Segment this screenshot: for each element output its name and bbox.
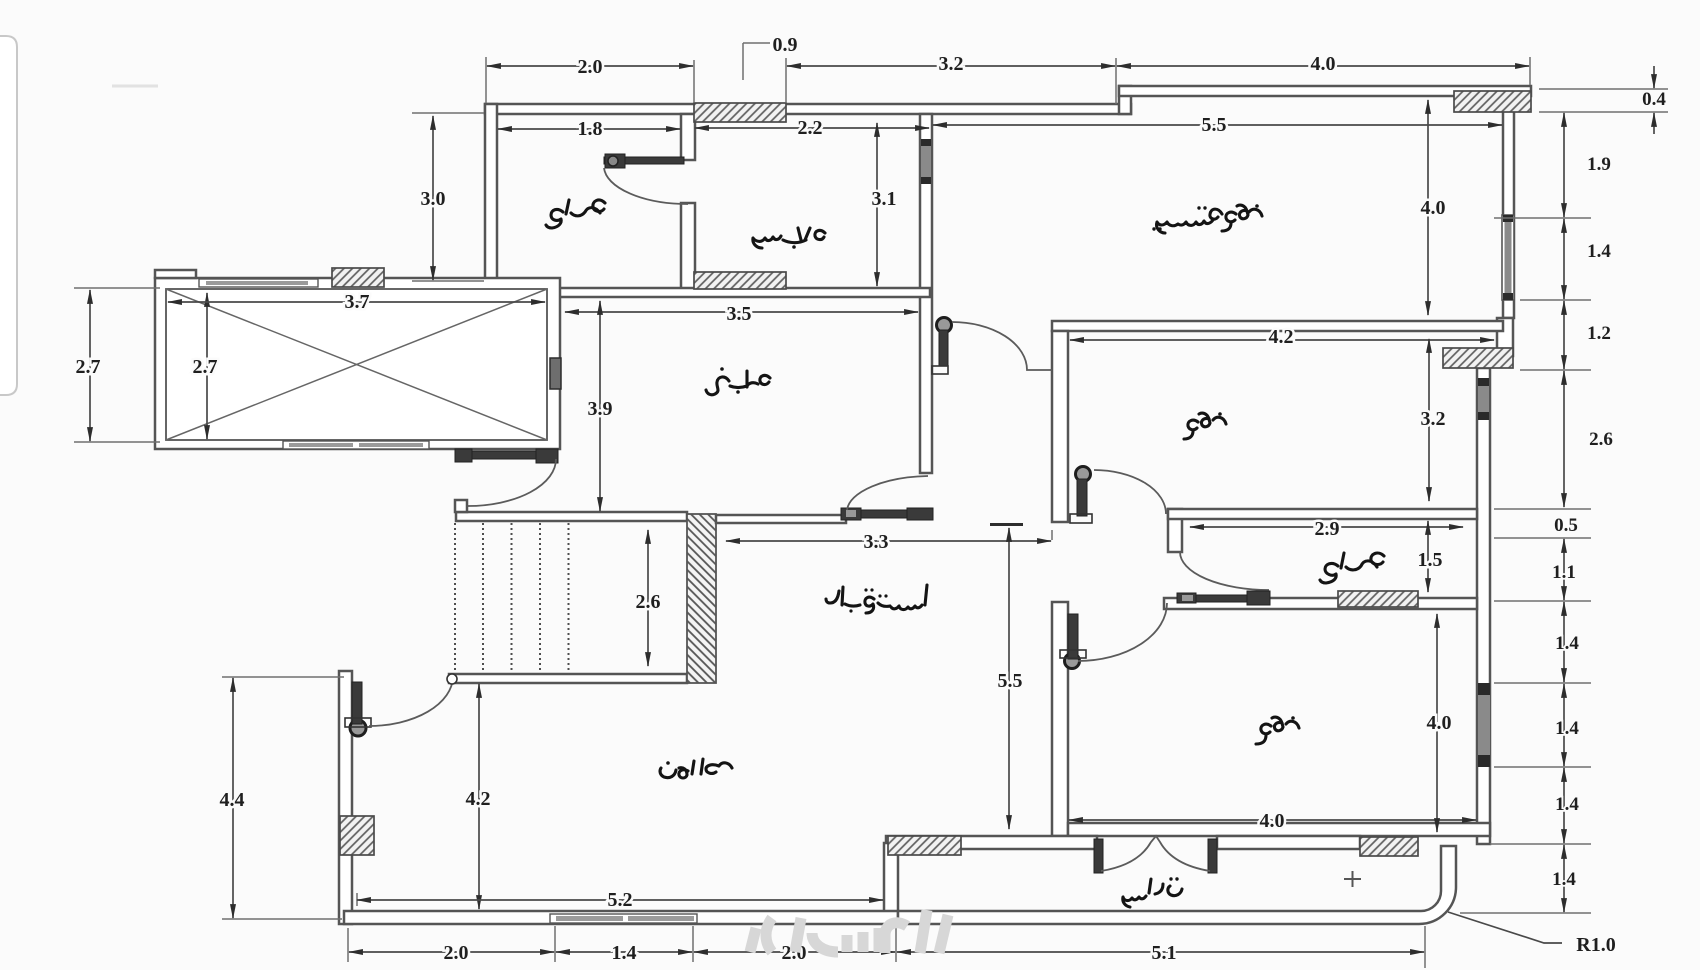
svg-text:5.2: 5.2 xyxy=(608,889,633,911)
svg-text:0.9: 0.9 xyxy=(773,34,798,56)
svg-text:4.2: 4.2 xyxy=(1269,326,1294,348)
svg-text:4.0: 4.0 xyxy=(1260,810,1285,832)
svg-text:2.7: 2.7 xyxy=(193,356,218,378)
svg-text:0.5: 0.5 xyxy=(1554,515,1578,536)
svg-text:4.0: 4.0 xyxy=(1311,53,1336,75)
svg-text:3.2: 3.2 xyxy=(1421,408,1446,430)
svg-text:1.9: 1.9 xyxy=(1587,154,1611,175)
svg-text:3.5: 3.5 xyxy=(727,303,752,325)
svg-text:3.9: 3.9 xyxy=(588,398,613,420)
svg-text:3.1: 3.1 xyxy=(872,188,897,210)
svg-text:5.5: 5.5 xyxy=(998,670,1023,692)
svg-text:1.4: 1.4 xyxy=(1587,241,1611,262)
svg-text:1.4: 1.4 xyxy=(1552,869,1576,890)
svg-text:1.2: 1.2 xyxy=(1587,323,1611,344)
svg-text:2.9: 2.9 xyxy=(1315,518,1340,540)
svg-text:4.0: 4.0 xyxy=(1421,197,1446,219)
svg-text:1.8: 1.8 xyxy=(578,118,603,140)
svg-text:2.0: 2.0 xyxy=(444,942,469,964)
svg-text:3.2: 3.2 xyxy=(939,53,964,75)
svg-text:1.4: 1.4 xyxy=(1555,633,1579,654)
svg-text:1.4: 1.4 xyxy=(1555,718,1579,739)
svg-text:5.5: 5.5 xyxy=(1202,114,1227,136)
svg-text:4.4: 4.4 xyxy=(220,789,245,811)
svg-text:3.7: 3.7 xyxy=(345,291,370,313)
svg-text:2.0: 2.0 xyxy=(578,56,603,78)
svg-text:1.1: 1.1 xyxy=(1552,562,1576,583)
svg-text:1.5: 1.5 xyxy=(1418,549,1443,571)
svg-text:3.0: 3.0 xyxy=(421,188,446,210)
svg-text:R1.0: R1.0 xyxy=(1576,934,1615,956)
svg-text:0.4: 0.4 xyxy=(1642,89,1666,110)
svg-text:2.2: 2.2 xyxy=(798,117,823,139)
svg-text:2.6: 2.6 xyxy=(636,591,661,613)
svg-text:2.7: 2.7 xyxy=(76,356,101,378)
svg-text:2.6: 2.6 xyxy=(1589,429,1613,450)
svg-text:5.1: 5.1 xyxy=(1152,942,1177,964)
svg-text:4.2: 4.2 xyxy=(466,788,491,810)
svg-text:3.3: 3.3 xyxy=(864,531,889,553)
svg-text:4.0: 4.0 xyxy=(1427,712,1452,734)
svg-text:1.4: 1.4 xyxy=(1555,794,1579,815)
svg-text:1.4: 1.4 xyxy=(612,942,637,964)
